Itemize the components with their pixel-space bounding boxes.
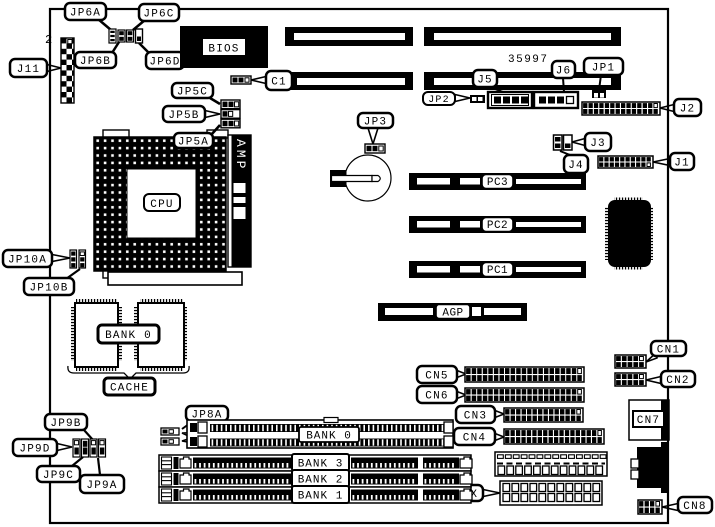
svg-text:JP6A: JP6A [70, 8, 101, 20]
svg-text:PC3: PC3 [487, 177, 508, 189]
svg-text:BANK 1: BANK 1 [298, 491, 344, 503]
svg-text:AGP: AGP [442, 308, 463, 320]
svg-text:CN2: CN2 [666, 375, 689, 387]
svg-text:2: 2 [45, 33, 52, 47]
svg-text:CN5: CN5 [425, 371, 448, 383]
svg-text:J6: J6 [556, 66, 572, 78]
svg-text:CN6: CN6 [425, 391, 448, 403]
svg-text:JP9B: JP9B [50, 418, 81, 430]
svg-text:35997: 35997 [508, 54, 549, 66]
svg-text:J5: J5 [477, 75, 493, 87]
svg-text:J4: J4 [568, 160, 584, 172]
svg-text:PC2: PC2 [487, 220, 508, 232]
svg-text:CN4: CN4 [463, 433, 486, 445]
svg-text:CN3: CN3 [464, 411, 487, 423]
svg-text:J2: J2 [680, 104, 696, 116]
svg-text:JP5C: JP5C [177, 87, 208, 99]
svg-text:BIOS: BIOS [208, 44, 239, 56]
svg-text:JP6D: JP6D [149, 57, 180, 69]
svg-text:JP2: JP2 [428, 95, 450, 106]
svg-text:J11: J11 [17, 64, 40, 76]
svg-text:CACHE: CACHE [110, 383, 149, 395]
svg-text:JP3: JP3 [364, 117, 387, 129]
svg-text:BANK 2: BANK 2 [298, 475, 344, 487]
svg-text:JP9A: JP9A [86, 480, 117, 492]
svg-text:J1: J1 [674, 158, 690, 170]
svg-text:AMP: AMP [233, 139, 248, 171]
svg-text:JP9C: JP9C [43, 470, 74, 482]
svg-text:PC1: PC1 [487, 265, 508, 277]
svg-text:JP10A: JP10A [8, 255, 47, 267]
svg-text:CN1: CN1 [657, 345, 680, 357]
svg-text:JP1: JP1 [592, 63, 615, 75]
svg-text:JP9D: JP9D [19, 444, 50, 456]
svg-text:CN8: CN8 [683, 501, 706, 513]
svg-text:J3: J3 [590, 138, 606, 150]
svg-text:JP6B: JP6B [80, 56, 111, 68]
svg-text:JP5A: JP5A [178, 137, 209, 149]
svg-text:CPU: CPU [150, 199, 173, 211]
svg-text:BANK 0: BANK 0 [105, 330, 152, 342]
svg-text:JP10B: JP10B [29, 283, 68, 295]
svg-text:JP6C: JP6C [143, 9, 174, 21]
svg-text:BANK 3: BANK 3 [298, 459, 344, 471]
svg-text:C1: C1 [271, 77, 287, 89]
svg-text:BANK 0: BANK 0 [306, 431, 352, 443]
svg-text:CN7: CN7 [637, 415, 660, 427]
svg-text:JP5B: JP5B [168, 110, 199, 122]
